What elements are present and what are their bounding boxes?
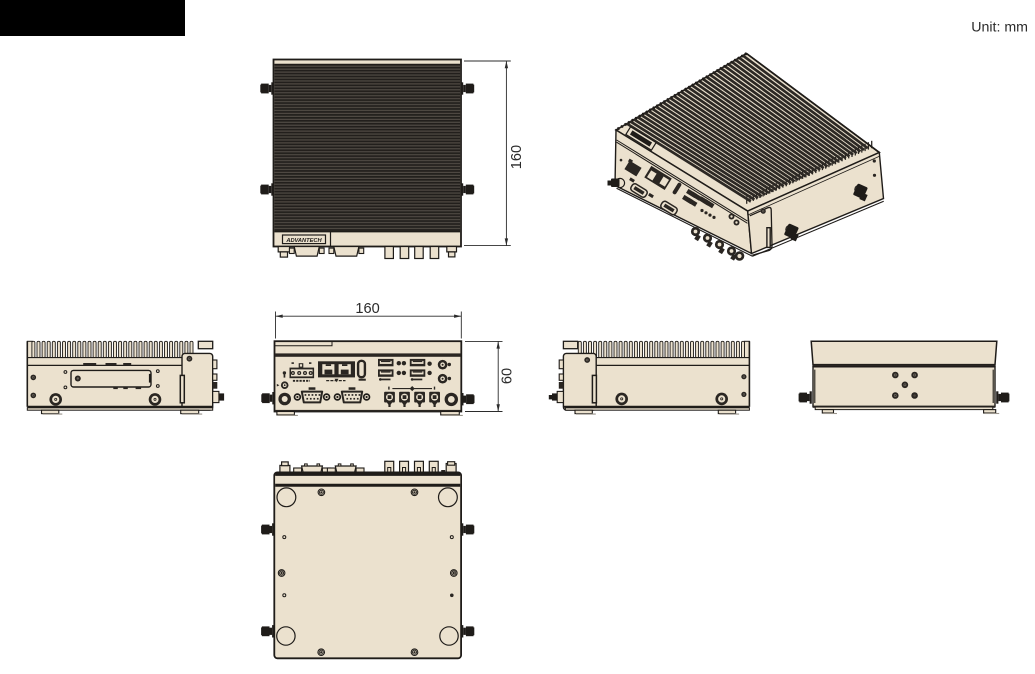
svg-text:Unit: mm: Unit: mm <box>971 20 1028 36</box>
svg-text:160: 160 <box>509 145 525 169</box>
svg-text:160: 160 <box>355 301 379 317</box>
svg-text:ADVANTECH: ADVANTECH <box>285 238 322 244</box>
svg-text:60: 60 <box>499 368 515 384</box>
